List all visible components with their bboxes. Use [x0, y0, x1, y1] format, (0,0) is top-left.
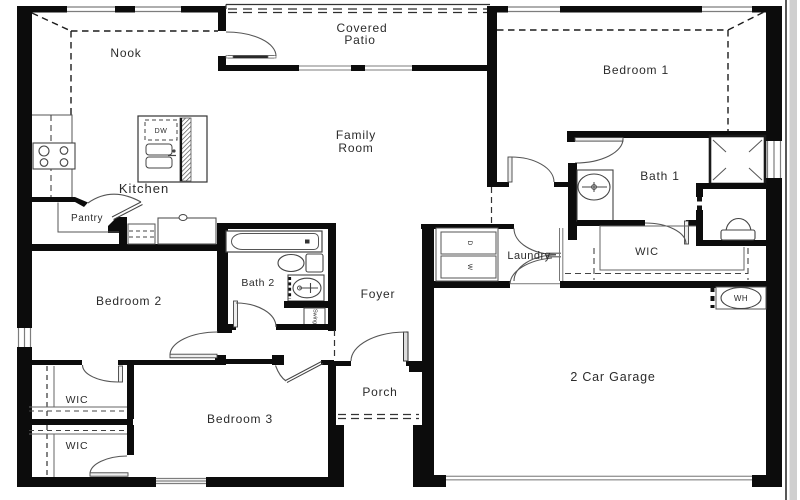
svg-text:Porch: Porch [362, 385, 397, 399]
svg-text:Bath 1: Bath 1 [640, 169, 680, 183]
svg-text:Pantry: Pantry [71, 213, 103, 224]
svg-text:Bedroom 1: Bedroom 1 [603, 63, 669, 77]
svg-text:WIC: WIC [635, 246, 659, 258]
svg-text:Patio: Patio [344, 33, 375, 47]
svg-text:Laundry: Laundry [507, 250, 550, 262]
svg-text:D: D [466, 241, 473, 246]
svg-text:Room: Room [338, 141, 373, 155]
svg-text:Bath 2: Bath 2 [241, 277, 274, 289]
svg-text:Bedroom 2: Bedroom 2 [96, 294, 162, 308]
svg-text:Foyer: Foyer [361, 287, 396, 301]
svg-text:W: W [466, 264, 473, 271]
svg-text:WIC: WIC [66, 440, 89, 452]
svg-text:Nook: Nook [110, 46, 141, 60]
svg-text:Family: Family [336, 128, 376, 142]
svg-text:DW: DW [155, 128, 168, 135]
svg-text:Bedroom 3: Bedroom 3 [207, 412, 273, 426]
svg-text:2 Car Garage: 2 Car Garage [570, 370, 655, 384]
svg-text:WH: WH [734, 294, 748, 303]
svg-text:WIC: WIC [66, 394, 89, 406]
svg-text:Swing: Swing [312, 309, 318, 324]
svg-text:Kitchen: Kitchen [119, 181, 169, 196]
